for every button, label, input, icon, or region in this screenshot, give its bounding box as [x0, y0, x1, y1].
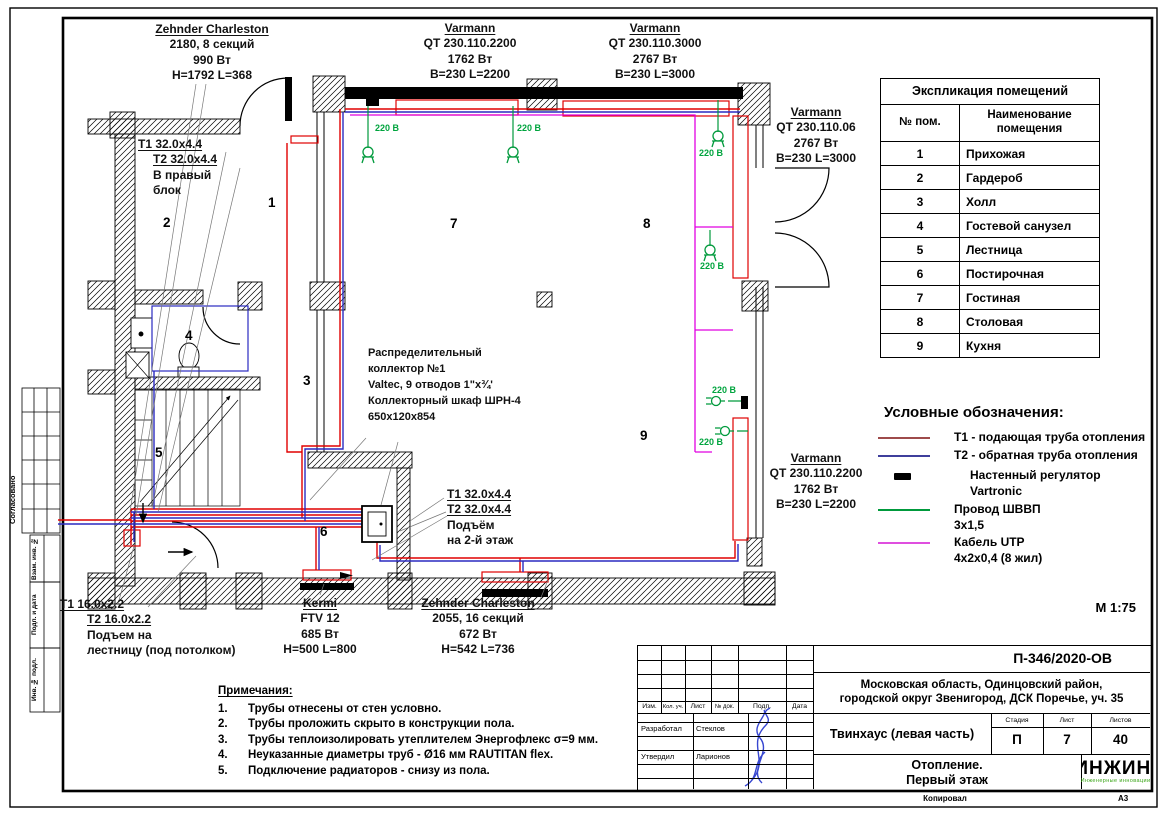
stage-value: П [991, 727, 1043, 753]
radiator-label-zehnder-2180: Zehnder Charleston 2180, 8 секций 990 Вт… [155, 22, 268, 83]
object-name: Твинхаус (левая часть) [813, 714, 991, 753]
col-izm: Изм. [638, 701, 661, 713]
radiator-label-kermi: Kermi FTV 12 685 Вт H=500 L=800 [283, 596, 356, 657]
col-kol: Кол. уч. [661, 701, 685, 713]
sheet-label: Лист [1043, 714, 1091, 727]
room-number-8: 8 [643, 216, 651, 231]
radiator-label-zehnder-2055: Zehnder Charleston 2055, 16 секций 672 В… [421, 596, 534, 657]
riser-label-stairs: Т1 16.0x2.2 Т2 16.0x2.2 Подъем на лестни… [60, 597, 235, 658]
note-item: 2.Трубы проложить скрыто в конструкции п… [218, 717, 598, 733]
sheet-value: 7 [1043, 727, 1091, 753]
power-label-220v: 220 В [699, 437, 723, 447]
approved-role: Утвердил [638, 750, 695, 764]
manifold-label: Распределительный коллектор №1 Valtec, 9… [368, 345, 521, 425]
column-header-number: № пом. [881, 105, 960, 142]
table-row: 3Холл [881, 190, 1100, 214]
power-label-220v: 220 В [712, 385, 736, 395]
logo-subtitle: Инженерные инновации [1081, 778, 1150, 784]
note-item: 5.Подключение радиаторов - снизу из пола… [218, 764, 598, 780]
room-number-3: 3 [303, 373, 311, 388]
legend-item-t2: Т2 - обратная труба отопления [878, 448, 1138, 464]
note-item: 1.Трубы отнесены от стен условно. [218, 702, 598, 718]
power-label-220v: 220 В [699, 148, 723, 158]
col-data: Дата [786, 701, 813, 713]
developed-name: Стеклов [693, 722, 750, 736]
glazing-bands [285, 77, 743, 597]
room-number-5: 5 [155, 445, 163, 460]
convector-label-varmann-06-right: Varmann QT 230.110.06 2767 Вт B=230 L=30… [776, 105, 856, 166]
heating-plan-sheet: Zehnder Charleston 2180, 8 секций 990 Вт… [0, 0, 1166, 816]
room-number-6: 6 [320, 524, 328, 539]
utp-cable-sample [878, 542, 930, 544]
side-stamp-vzam: Взам. инв. № [31, 536, 38, 581]
stage-label: Стадия [991, 714, 1043, 727]
sheets-value: 40 [1091, 727, 1150, 753]
notes-block: Примечания: 1.Трубы отнесены от стен усл… [218, 684, 598, 779]
title-block: Изм. Кол. уч. Лист № док. Подп. Дата Раз… [637, 645, 1152, 791]
col-doc: № док. [711, 701, 738, 713]
col-list: Лист [685, 701, 711, 713]
bathroom-pipe-loop [152, 306, 248, 371]
window-lines [317, 112, 763, 538]
t2-pipe-sample [878, 455, 930, 457]
table-row: 2Гардероб [881, 166, 1100, 190]
pipe-label-right-block: Т1 32.0x4.4 Т2 32.0x4.4 В правый блок [138, 137, 217, 198]
room-explication-table: Экспликация помещений № пом. Наименовани… [880, 78, 1100, 358]
convector-label-varmann-2200-right: Varmann QT 230.110.2200 1762 Вт B=230 L=… [770, 451, 863, 512]
legend-item-t1: Т1 - подающая труба отопления [878, 430, 1145, 446]
developed-role: Разработал [638, 722, 695, 736]
table-header-row: № пом. Наименование помещения [881, 105, 1100, 142]
t1-pipe-sample [878, 437, 930, 439]
room-number-9: 9 [640, 428, 648, 443]
side-stamp-agreed: Согласовано [8, 465, 17, 535]
legend-item-regulator: Настенный регулятор Vartronic [878, 468, 1101, 499]
legend-item-shvvp: Провод ШВВП 3х1,5 [878, 502, 1041, 533]
side-stamp-inv: Инв. № подл. [31, 649, 38, 711]
convector-label-varmann-3000-top: Varmann QT 230.110.3000 2767 Вт B=230 L=… [609, 21, 702, 82]
shvvp-wire-sample [878, 509, 930, 511]
column-header-name: Наименование помещения [960, 105, 1100, 142]
power-label-220v: 220 В [517, 123, 541, 133]
riser-label-second-floor: Т1 32.0x4.4 Т2 32.0х4.4 Подъём на 2-й эт… [447, 487, 513, 548]
note-item: 4.Неуказанные диаметры труб - Ø16 мм RAU… [218, 748, 598, 764]
company-logo: ИНЖИН® Инженерные инновации [1081, 754, 1150, 789]
table-row: 8Столовая [881, 310, 1100, 334]
format-label: А3 [1118, 794, 1128, 803]
approved-name: Ларионов [693, 750, 750, 764]
table-row: 6Постирочная [881, 262, 1100, 286]
power-label-220v: 220 В [700, 261, 724, 271]
table-row: 1Прихожая [881, 142, 1100, 166]
notes-title: Примечания: [218, 684, 598, 700]
side-stamp-grid [22, 388, 60, 712]
sheet-title: Отопление. Первый этаж [813, 754, 1081, 793]
room-number-7: 7 [450, 216, 458, 231]
manifold-cabinet [362, 506, 392, 542]
sheets-label: Листов [1091, 714, 1150, 727]
legend-title: Условные обозначения: [884, 404, 1064, 421]
table-row: 9Кухня [881, 334, 1100, 358]
scale-label: М 1:75 [1058, 600, 1136, 615]
note-item: 3.Трубы теплоизолировать утеплителем Эне… [218, 733, 598, 749]
table-row: 5Лестница [881, 238, 1100, 262]
legend-item-utp: Кабель UTP 4х2х0,4 (8 жил) [878, 535, 1042, 566]
copied-label: Копировал [905, 794, 985, 803]
stairs [135, 389, 240, 506]
bathroom-fixtures [126, 318, 199, 378]
regulator-sample [894, 473, 911, 480]
logo-text: ИНЖИН [1081, 758, 1150, 779]
col-podp: Подп. [738, 701, 786, 713]
table-title: Экспликация помещений [880, 78, 1100, 104]
table-row: 4Гостевой санузел [881, 214, 1100, 238]
project-address: Московская область, Одинцовский район, г… [813, 673, 1150, 717]
room-number-1: 1 [268, 195, 276, 210]
room-number-4: 4 [185, 328, 193, 343]
document-number: П-346/2020-ОВ [813, 646, 1150, 671]
table-row: 7Гостиная [881, 286, 1100, 310]
room-number-2: 2 [163, 215, 171, 230]
side-stamp-podp: Подп. и дата [31, 583, 38, 647]
convector-label-varmann-2200-top: Varmann QT 230.110.2200 1762 Вт B=230 L=… [424, 21, 517, 82]
power-label-220v: 220 В [375, 123, 399, 133]
